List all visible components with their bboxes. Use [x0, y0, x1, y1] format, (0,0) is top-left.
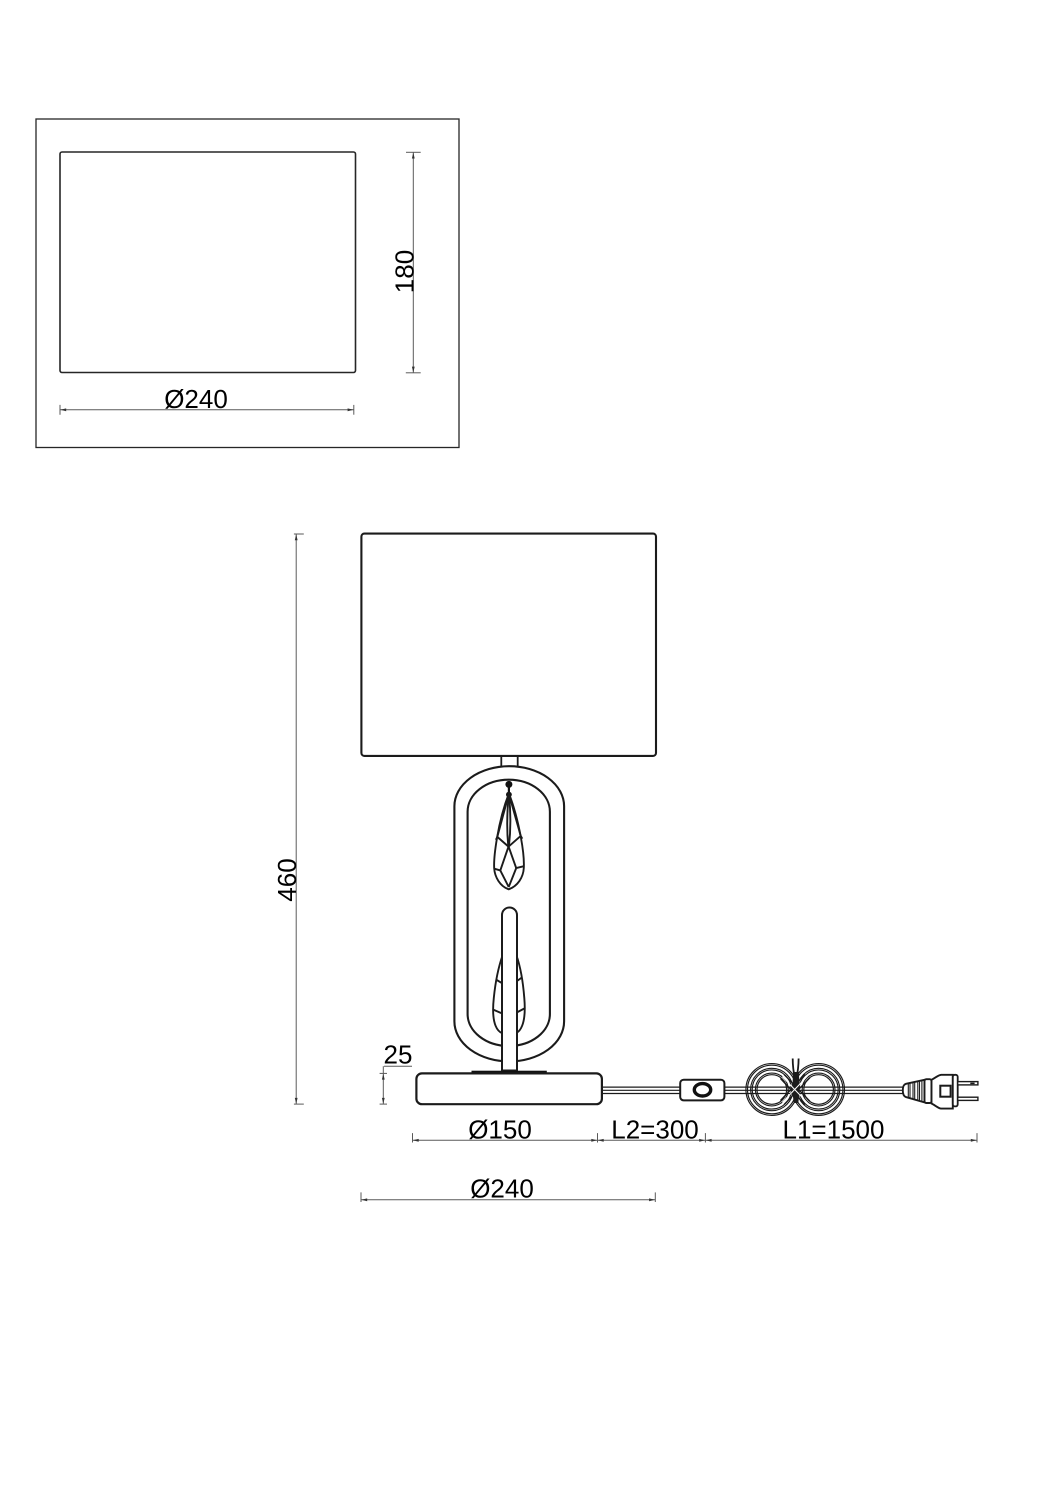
svg-text:25: 25 — [384, 1040, 413, 1070]
svg-text:Ø240: Ø240 — [470, 1174, 534, 1204]
svg-text:L2=300: L2=300 — [611, 1115, 698, 1145]
svg-text:Ø150: Ø150 — [468, 1115, 532, 1145]
svg-text:L1=1500: L1=1500 — [783, 1115, 885, 1145]
svg-text:180: 180 — [389, 250, 419, 293]
svg-text:Ø240: Ø240 — [164, 384, 228, 414]
svg-text:460: 460 — [272, 858, 302, 901]
